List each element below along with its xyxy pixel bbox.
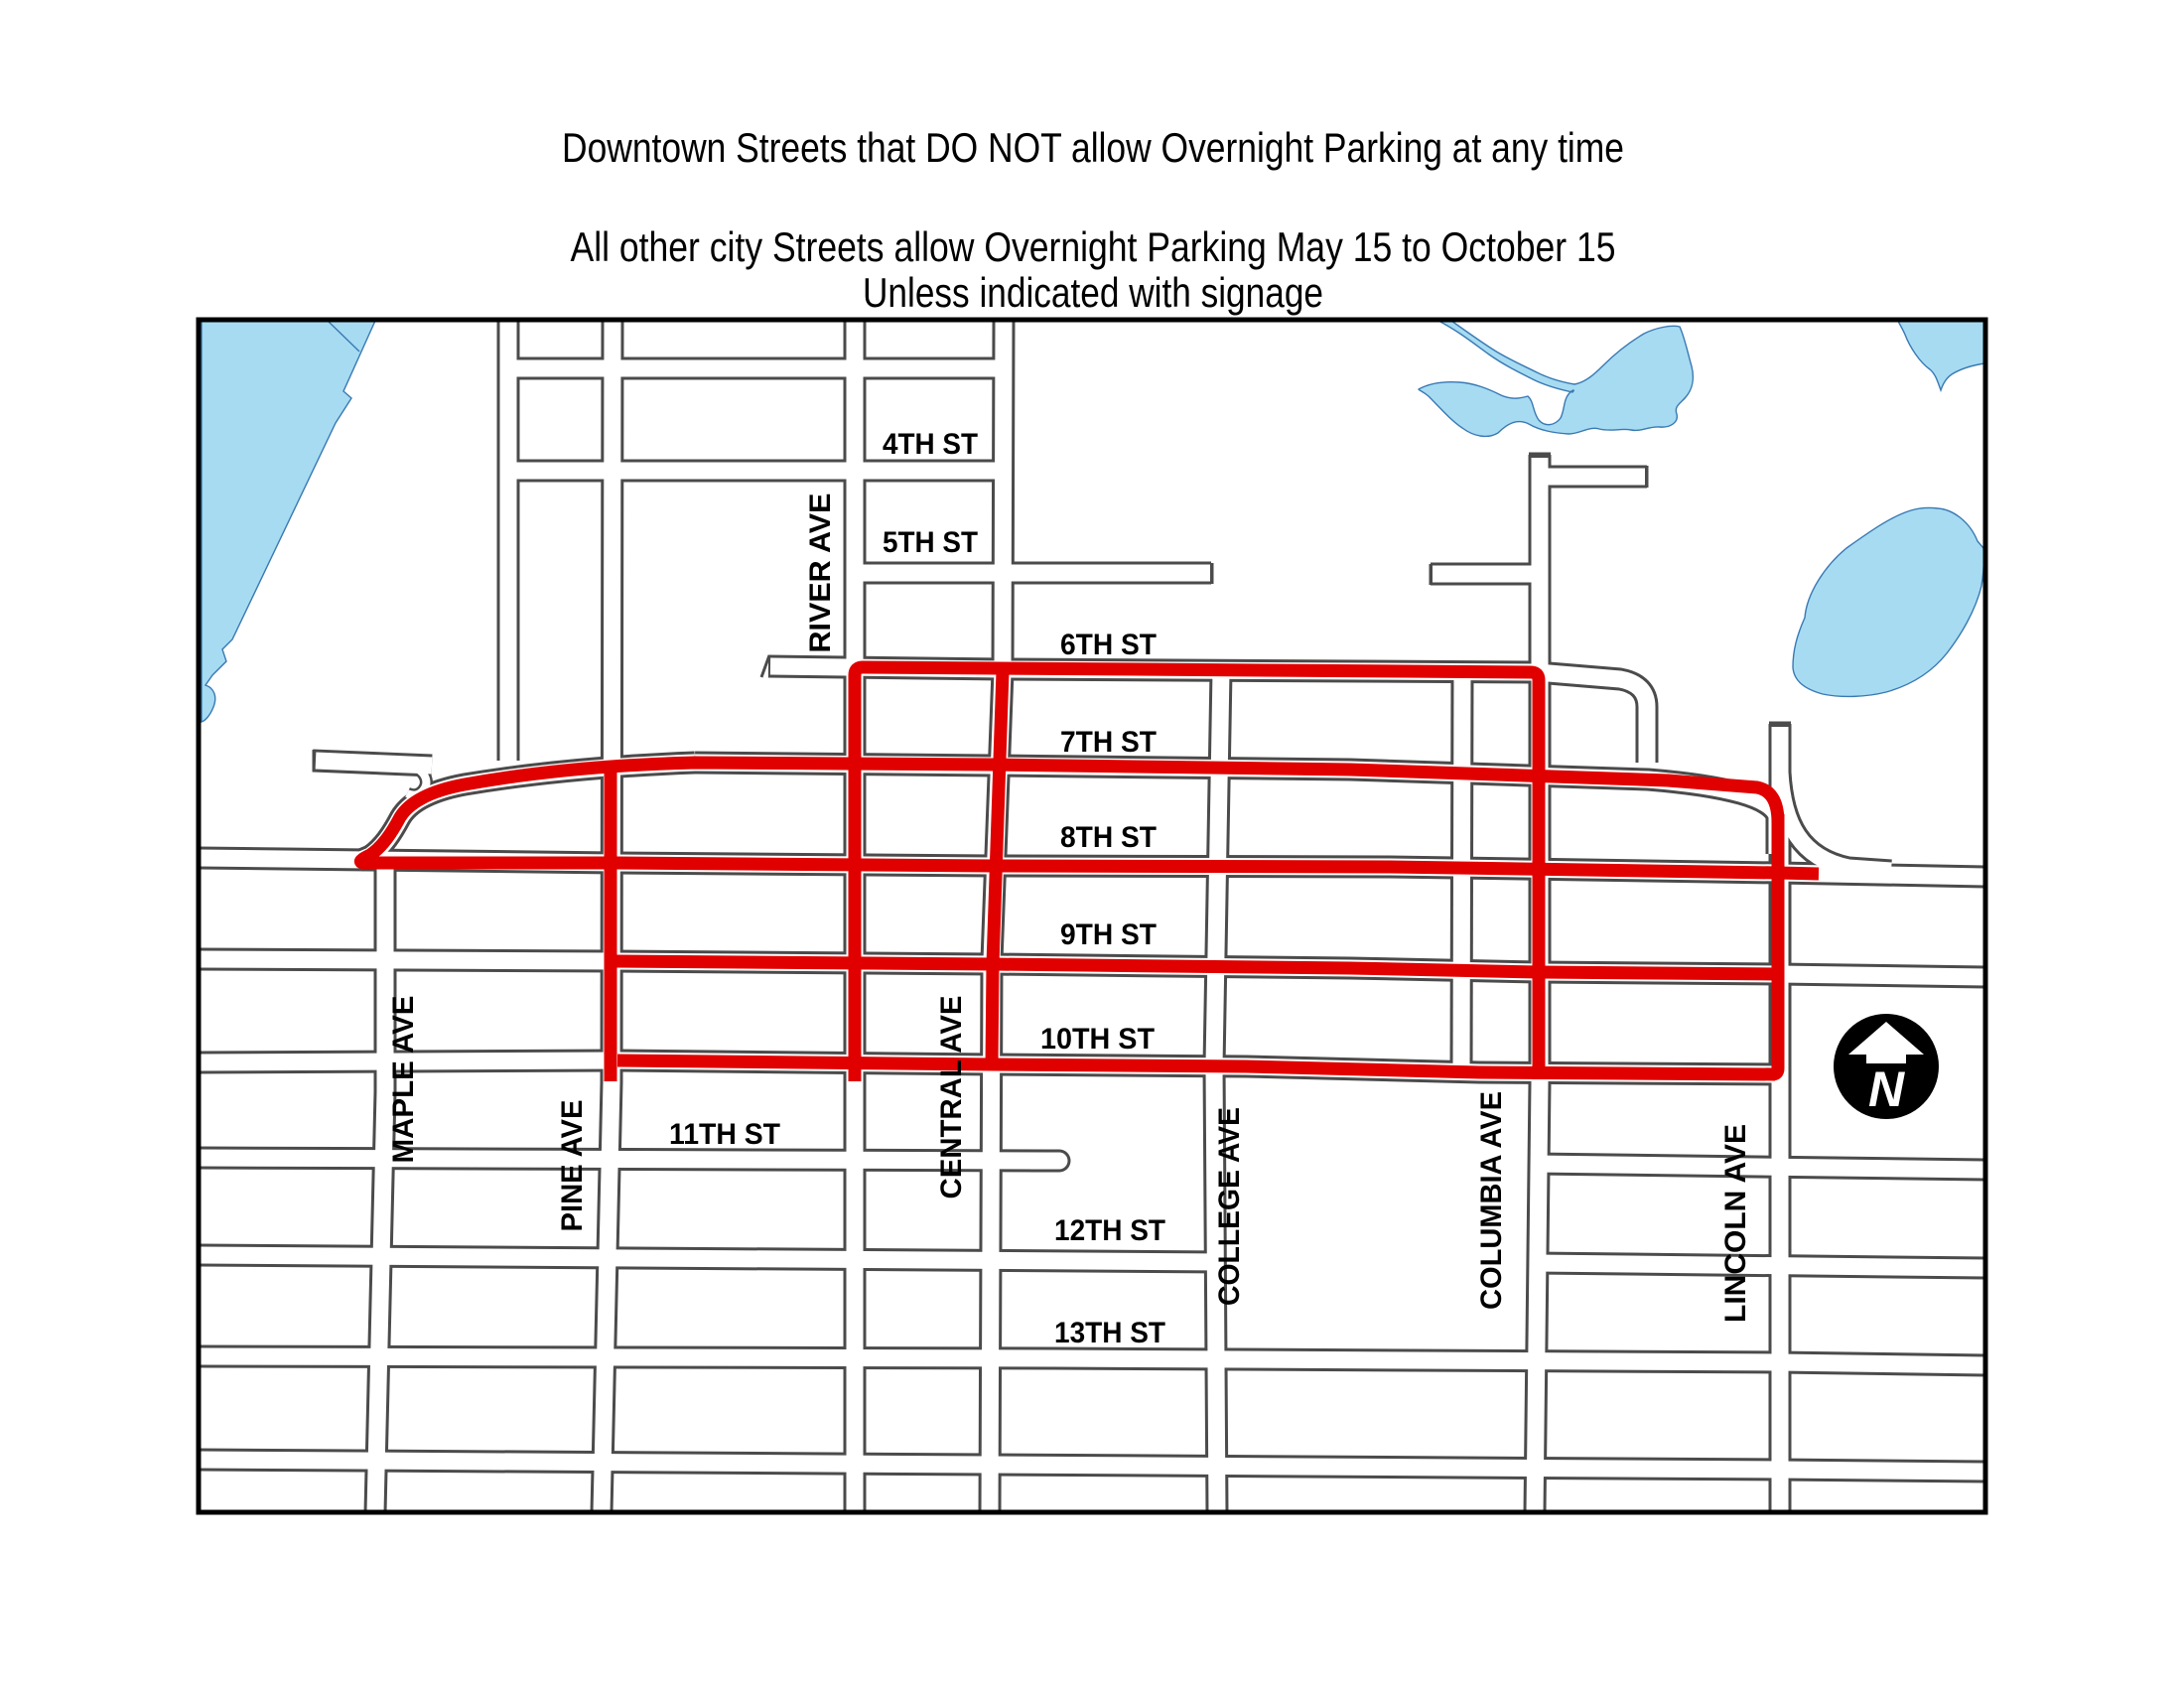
svg-text:12TH ST: 12TH ST <box>1054 1214 1165 1247</box>
svg-text:CENTRAL AVE: CENTRAL AVE <box>935 996 968 1199</box>
svg-text:5TH ST: 5TH ST <box>883 526 978 559</box>
svg-text:MAPLE AVE: MAPLE AVE <box>387 996 420 1164</box>
svg-text:Unless indicated with signage: Unless indicated with signage <box>863 269 1323 316</box>
svg-text:10TH ST: 10TH ST <box>1040 1023 1155 1056</box>
svg-text:COLUMBIA AVE: COLUMBIA AVE <box>1475 1091 1508 1310</box>
svg-text:RIVER AVE: RIVER AVE <box>804 494 837 653</box>
svg-text:11TH ST: 11TH ST <box>669 1118 780 1151</box>
svg-text:PINE AVE: PINE AVE <box>556 1100 589 1232</box>
svg-text:7TH ST: 7TH ST <box>1060 726 1157 759</box>
svg-text:4TH ST: 4TH ST <box>883 428 978 461</box>
svg-text:9TH ST: 9TH ST <box>1060 918 1157 951</box>
svg-text:All other city Streets allow O: All other city Streets allow Overnight P… <box>571 223 1616 270</box>
svg-text:N: N <box>1868 1061 1905 1117</box>
svg-text:Downtown Streets that DO NOT a: Downtown Streets that DO NOT allow Overn… <box>562 124 1624 171</box>
svg-text:13TH ST: 13TH ST <box>1054 1317 1165 1349</box>
svg-text:LINCOLN AVE: LINCOLN AVE <box>1719 1124 1752 1323</box>
svg-text:6TH ST: 6TH ST <box>1060 629 1157 661</box>
svg-text:COLLEGE AVE: COLLEGE AVE <box>1213 1107 1246 1306</box>
svg-text:8TH ST: 8TH ST <box>1060 821 1157 854</box>
